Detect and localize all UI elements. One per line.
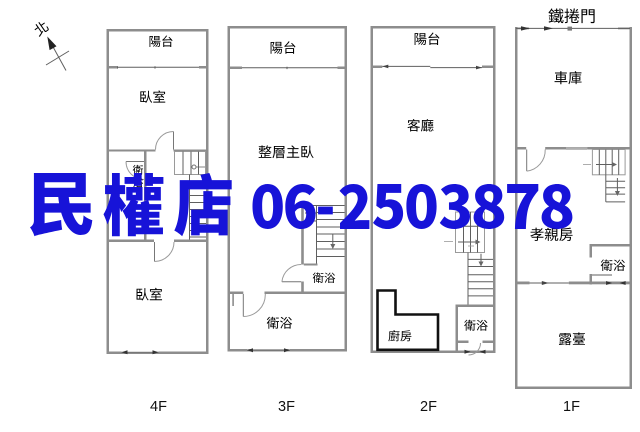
svg-text:3F: 3F bbox=[278, 399, 295, 415]
svg-text:2F: 2F bbox=[420, 399, 437, 415]
svg-text:1F: 1F bbox=[563, 399, 580, 415]
svg-text:4F: 4F bbox=[150, 399, 167, 415]
